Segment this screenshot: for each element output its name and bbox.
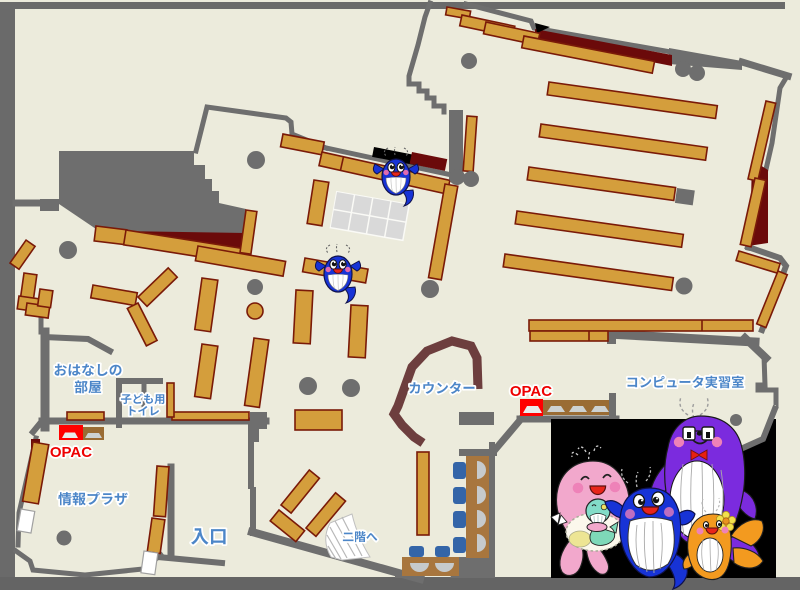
svg-text:OPAC: OPAC bbox=[50, 444, 92, 461]
svg-text:OPAC: OPAC bbox=[510, 383, 552, 400]
